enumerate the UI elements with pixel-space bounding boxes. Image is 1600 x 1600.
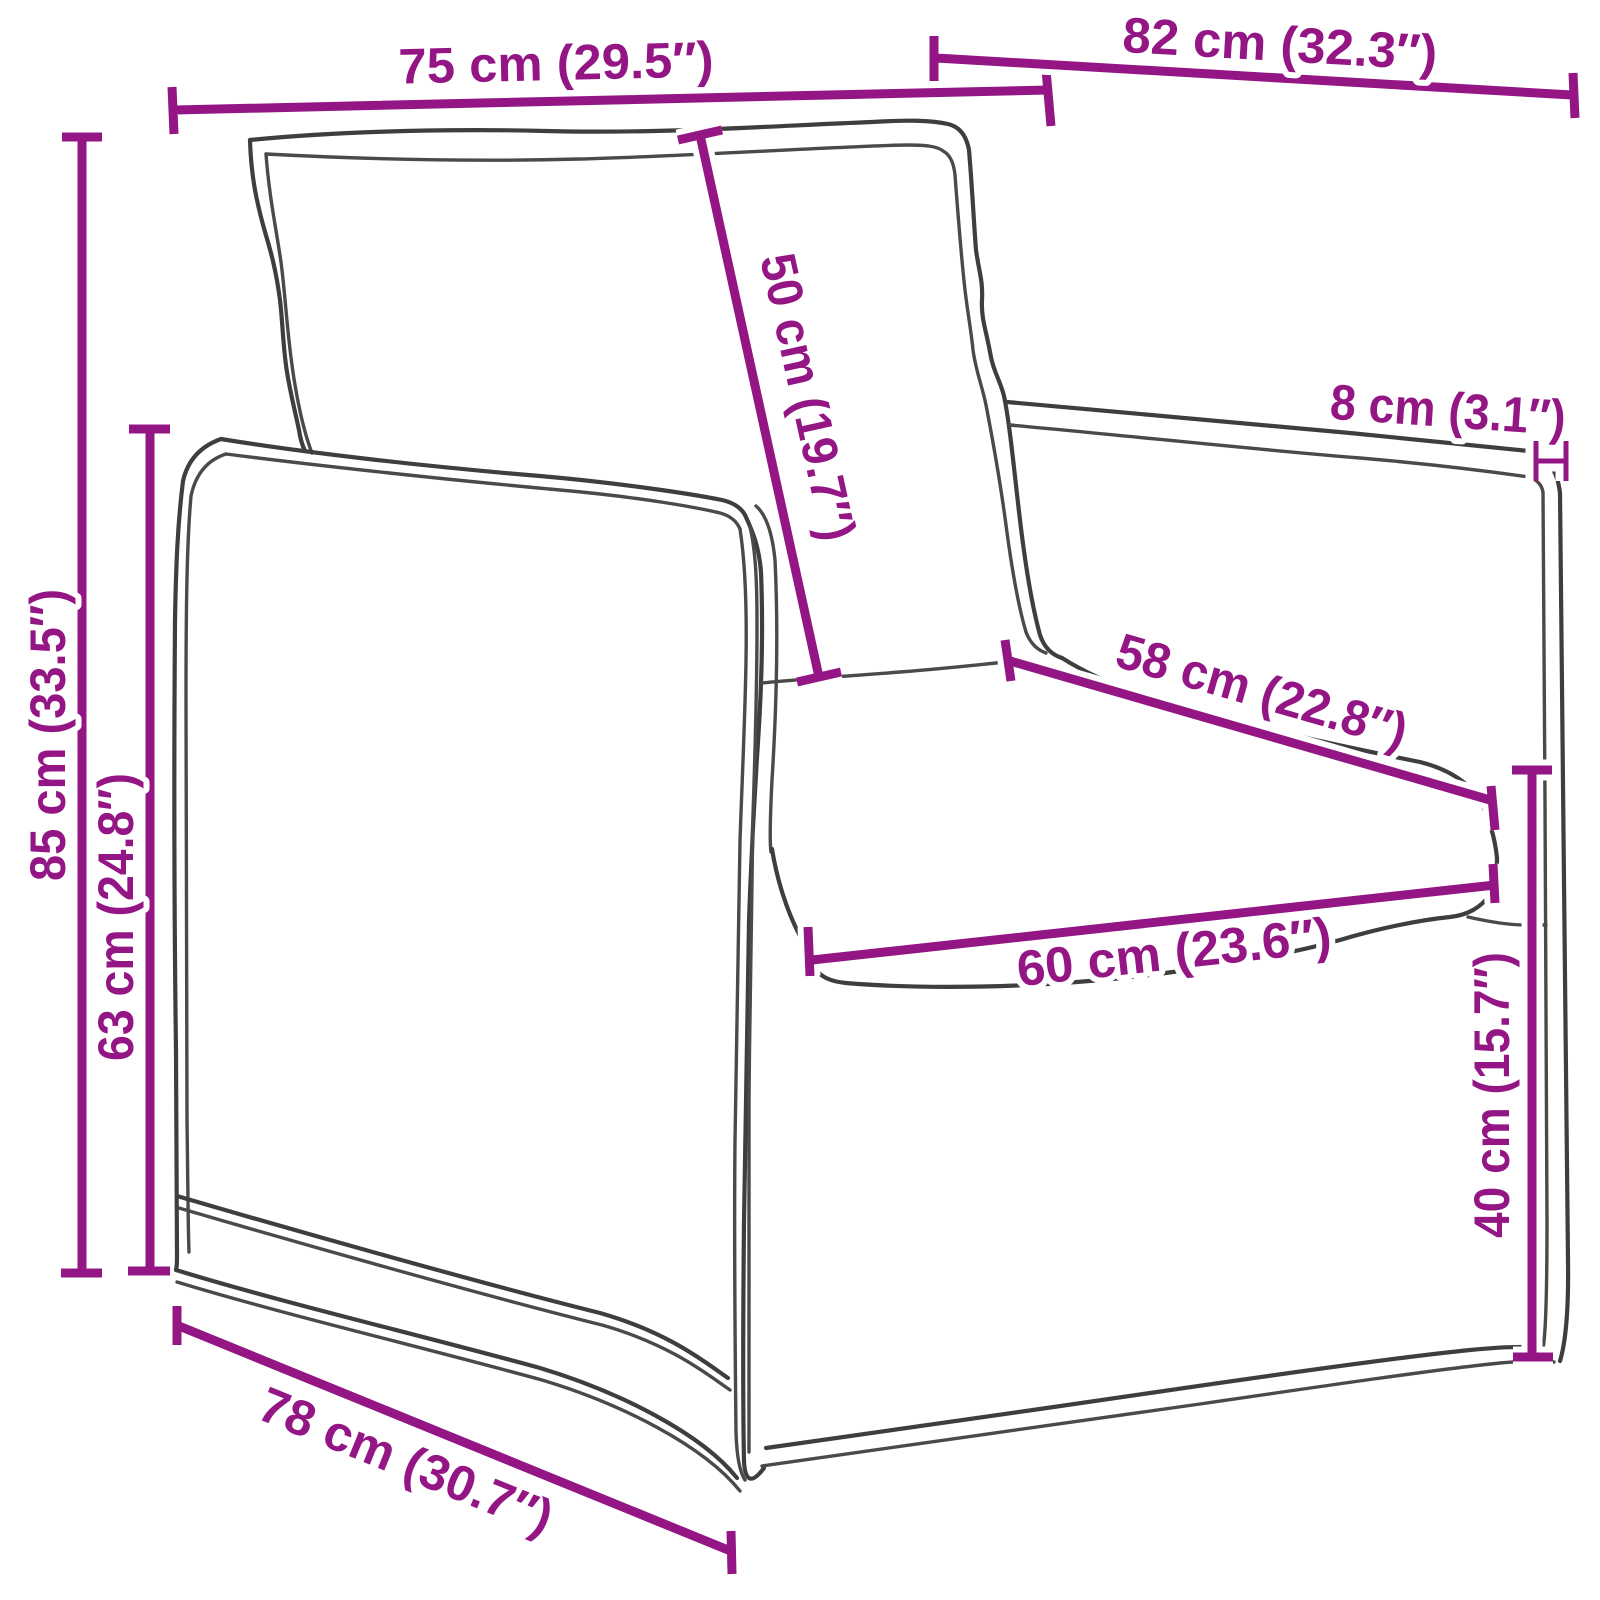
svg-text:75 cm (29.5″): 75 cm (29.5″) [398,31,714,94]
svg-text:85 cm (33.5″): 85 cm (33.5″) [20,589,76,881]
svg-text:63 cm (24.8″): 63 cm (24.8″) [88,773,144,1061]
svg-text:40 cm (15.7″): 40 cm (15.7″) [1464,952,1520,1238]
